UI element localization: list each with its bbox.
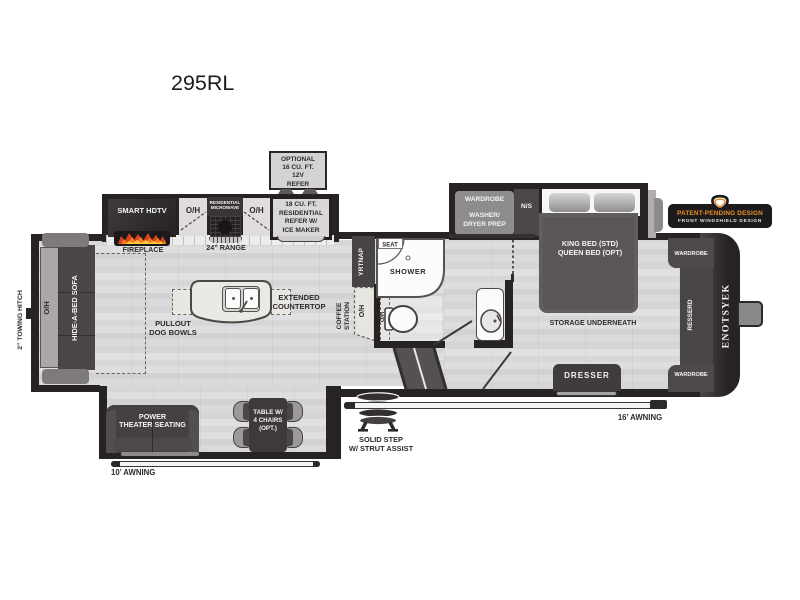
svg-text:SHOWER: SHOWER [390,267,426,276]
svg-text:SEAT: SEAT [382,243,398,249]
